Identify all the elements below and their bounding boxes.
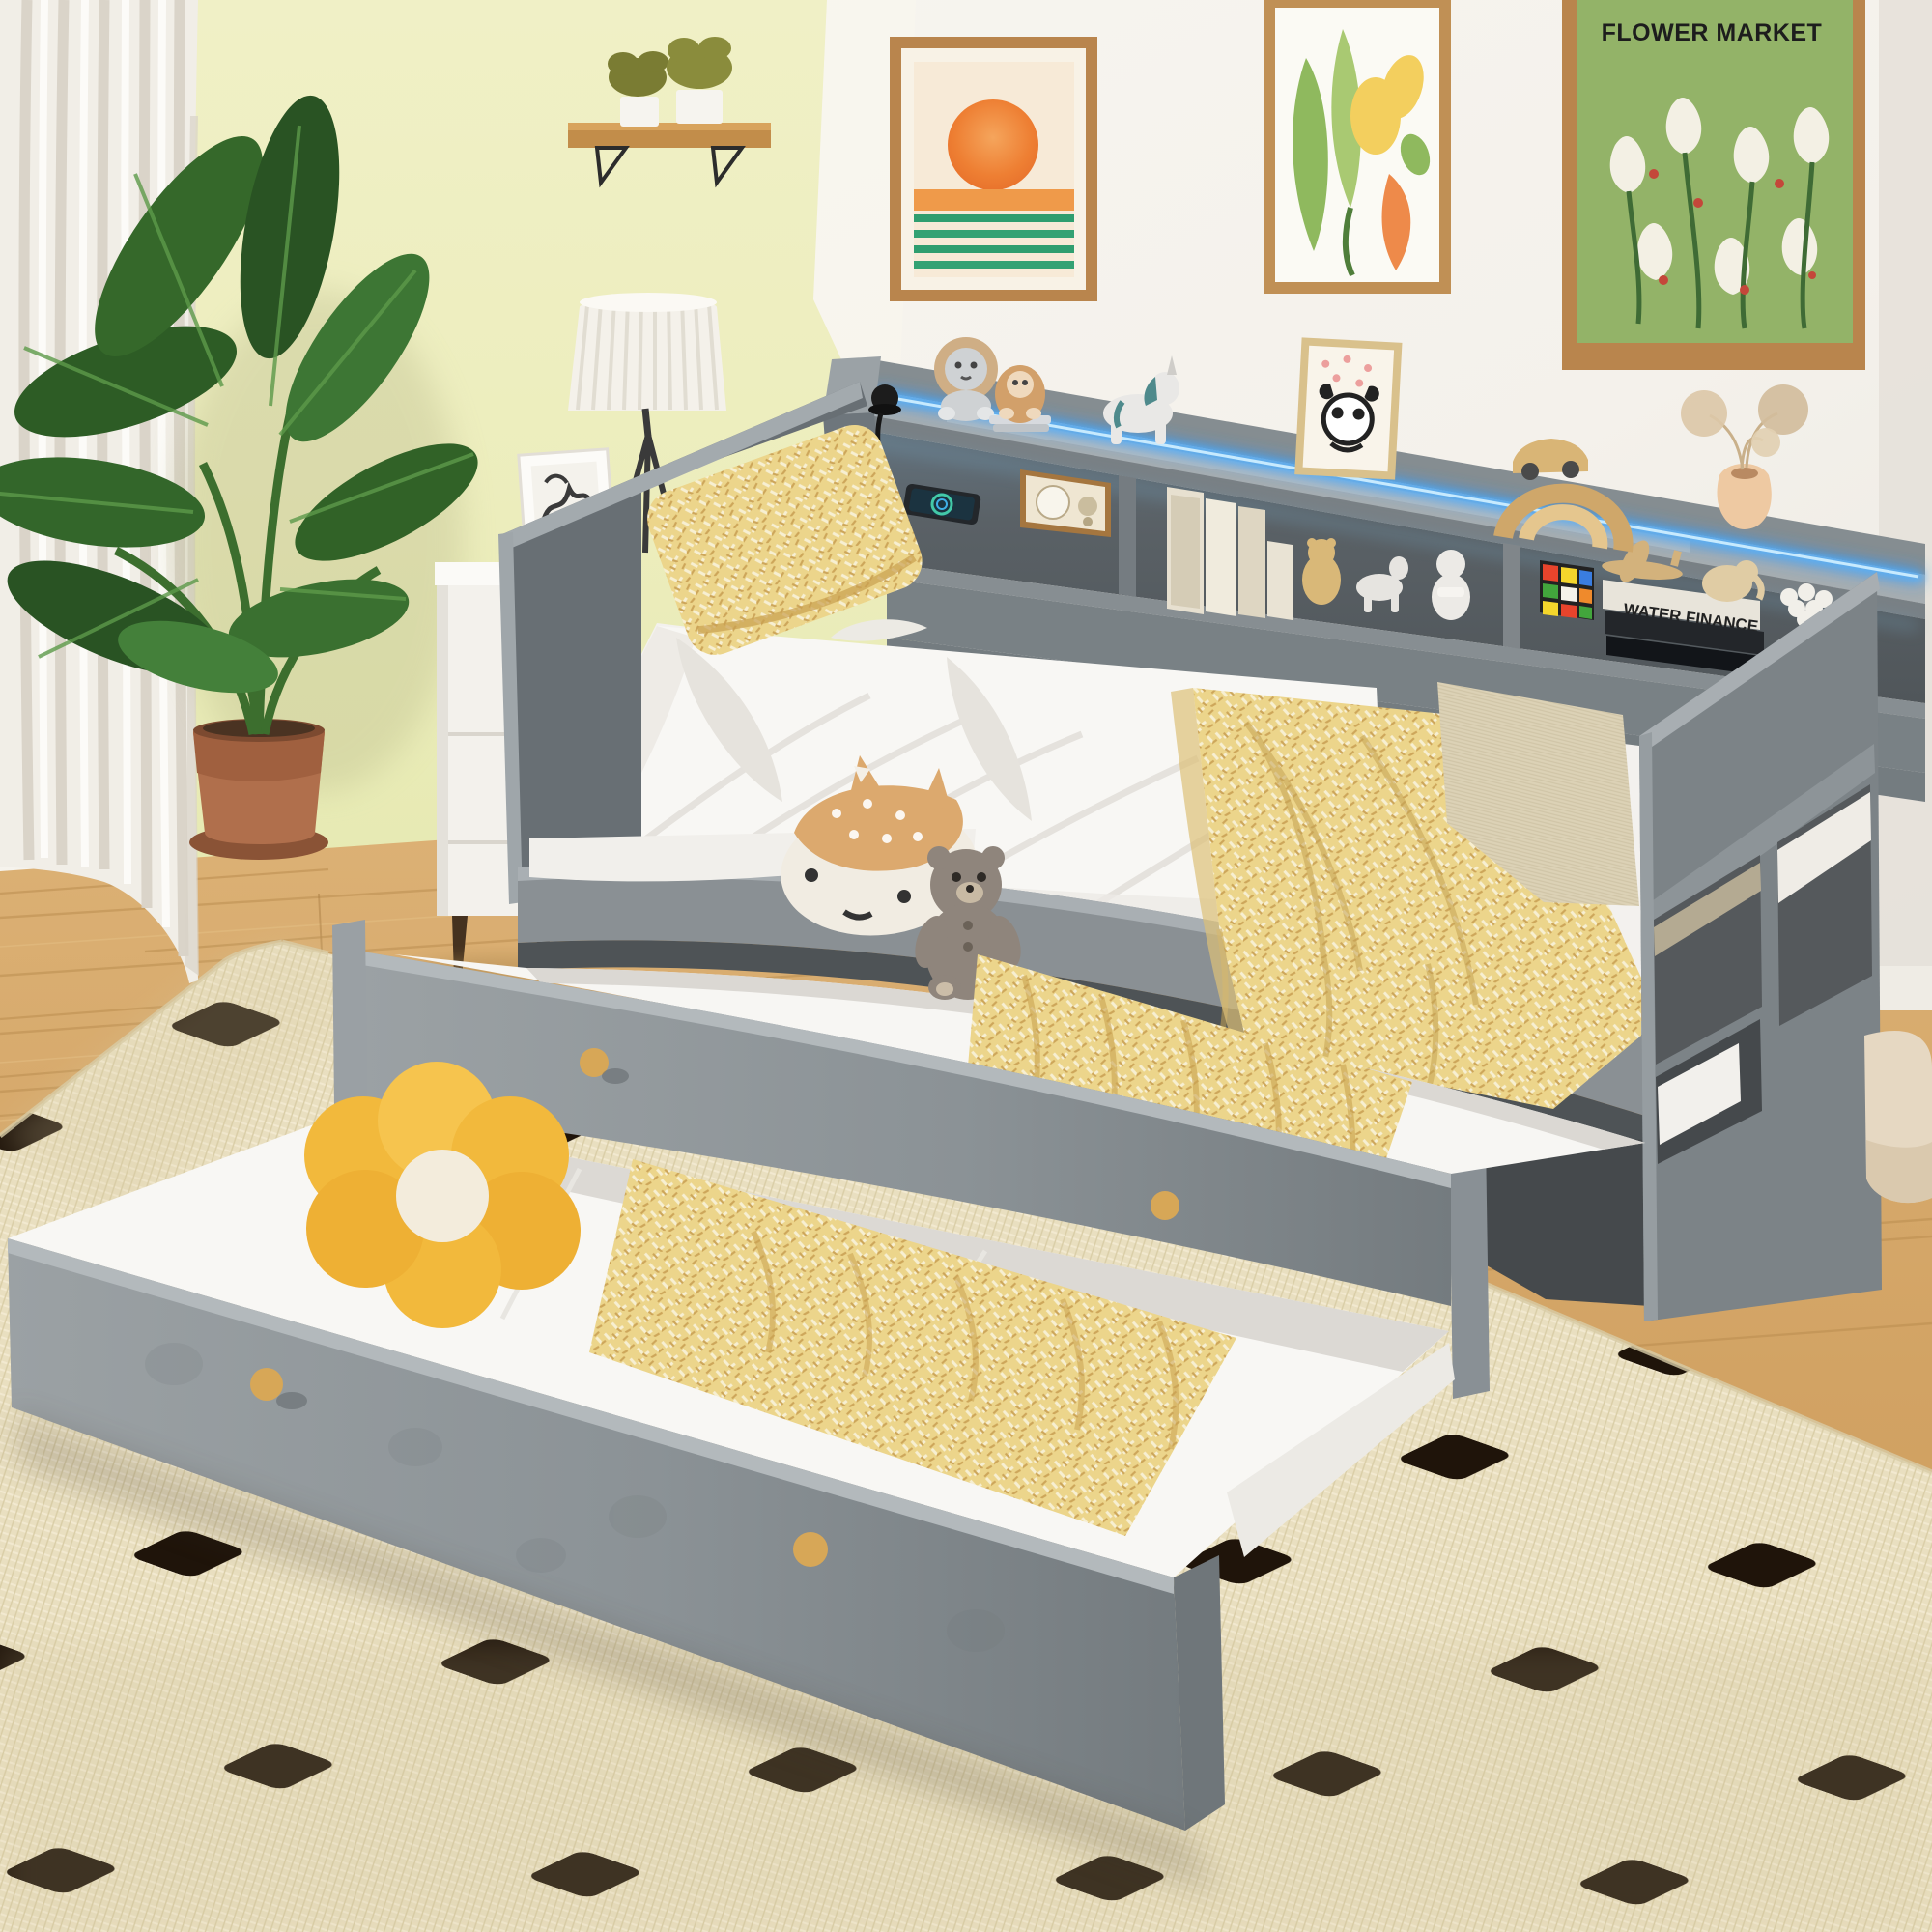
svg-text:FLOWER MARKET: FLOWER MARKET	[1602, 19, 1823, 46]
